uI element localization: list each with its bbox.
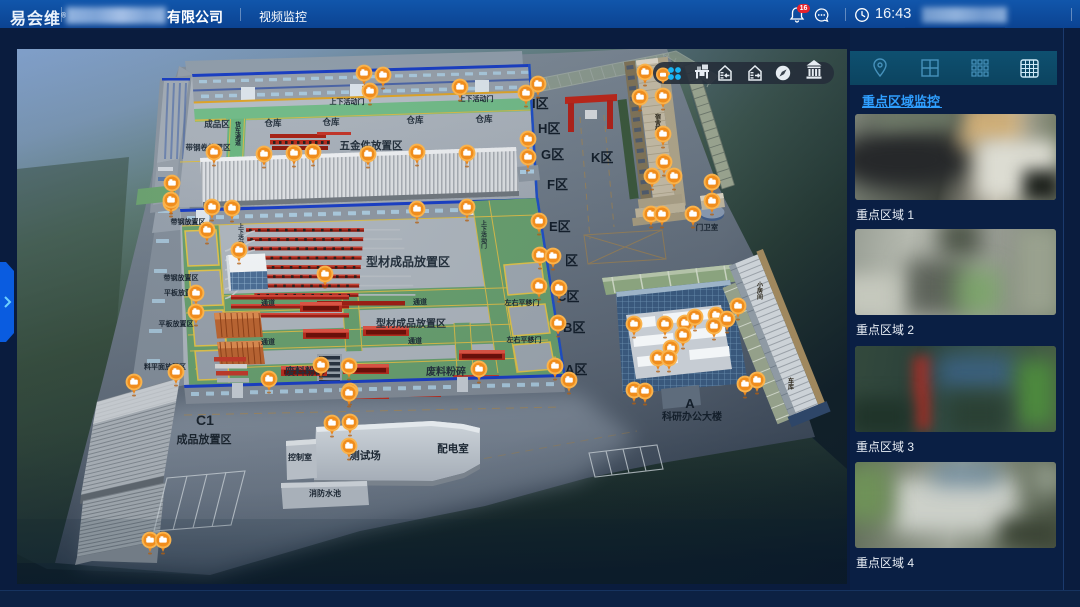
svg-text:A: A [685, 396, 695, 411]
svg-text:科研办公大楼: 科研办公大楼 [662, 410, 722, 423]
svg-text:控制室: 控制室 [288, 452, 312, 462]
svg-text:C1: C1 [196, 412, 214, 428]
svg-text:车库: 车库 [788, 377, 794, 391]
svg-text:成品放置区: 成品放置区 [177, 432, 232, 446]
svg-text:消防水池: 消防水池 [309, 488, 341, 498]
svg-text:配电室: 配电室 [437, 442, 469, 455]
svg-text:小房间: 小房间 [756, 281, 763, 301]
